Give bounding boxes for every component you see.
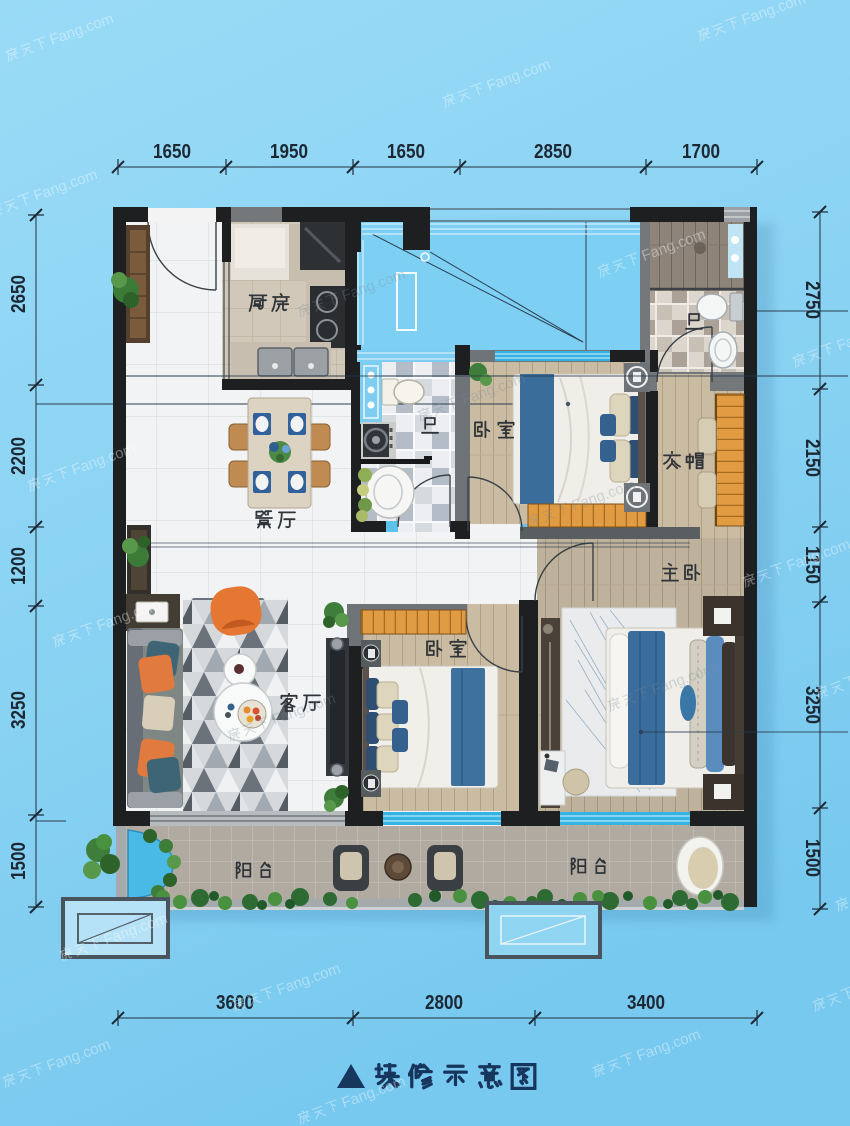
svg-text:2850: 2850 xyxy=(534,141,572,163)
svg-text:2200: 2200 xyxy=(8,437,30,475)
svg-text:2800: 2800 xyxy=(425,992,463,1014)
svg-text:1650: 1650 xyxy=(387,141,425,163)
svg-text:1500: 1500 xyxy=(801,839,823,877)
svg-text:1200: 1200 xyxy=(8,547,30,585)
svg-text:2750: 2750 xyxy=(801,281,823,319)
svg-text:3250: 3250 xyxy=(8,691,30,729)
svg-text:2650: 2650 xyxy=(8,275,30,313)
svg-text:1700: 1700 xyxy=(682,141,720,163)
svg-text:1500: 1500 xyxy=(8,842,30,880)
svg-text:1950: 1950 xyxy=(270,141,308,163)
svg-text:3400: 3400 xyxy=(627,992,665,1014)
svg-text:2150: 2150 xyxy=(801,439,823,477)
svg-text:1650: 1650 xyxy=(153,141,191,163)
